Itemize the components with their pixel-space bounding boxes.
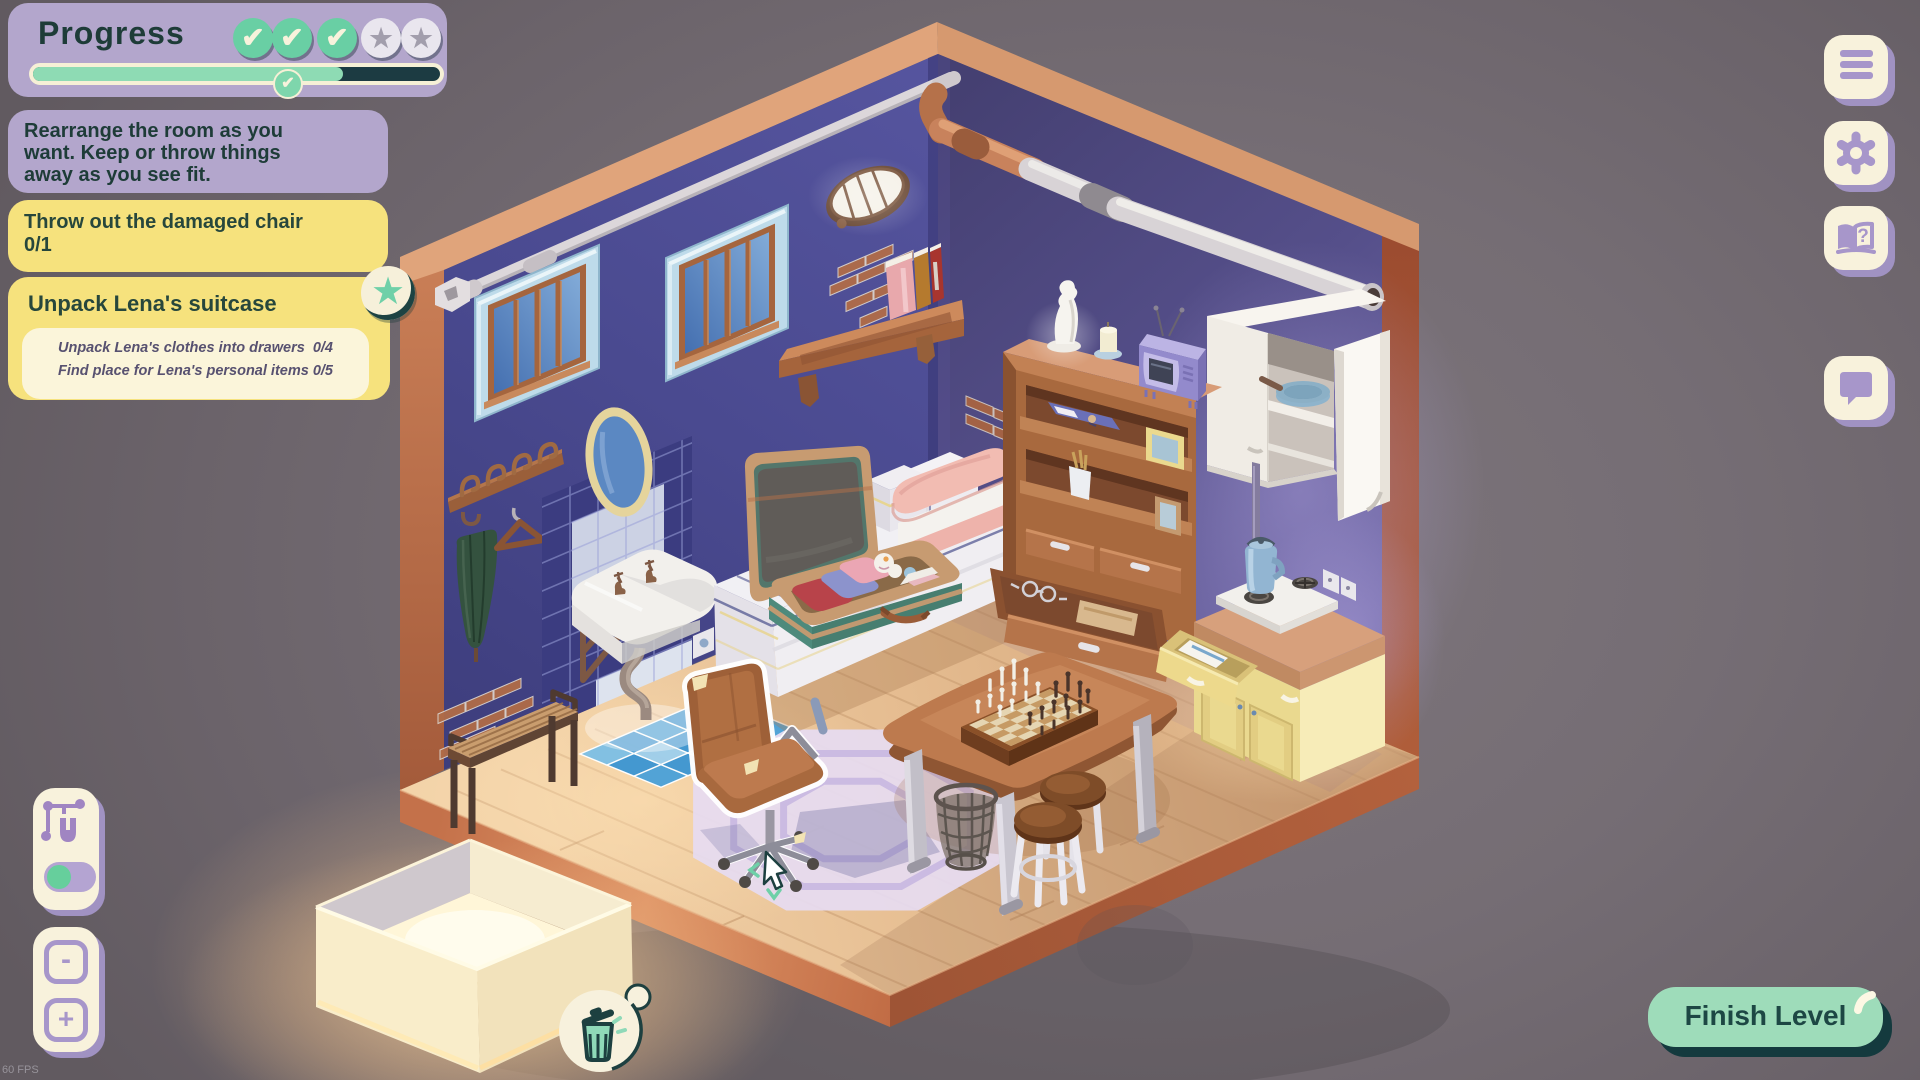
svg-text:?: ? [1857, 226, 1869, 247]
